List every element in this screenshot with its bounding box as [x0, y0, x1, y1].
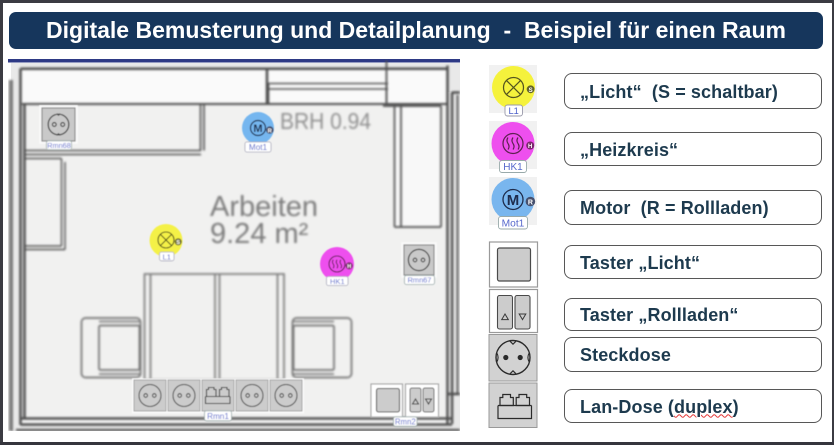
svg-text:H: H: [347, 264, 351, 270]
svg-text:Rmn2: Rmn2: [395, 417, 416, 426]
svg-text:Mot1: Mot1: [502, 218, 525, 229]
svg-text:HK1: HK1: [503, 162, 523, 173]
svg-text:Rmn67: Rmn67: [408, 276, 432, 285]
svg-text:S: S: [529, 88, 533, 94]
svg-text:S: S: [176, 240, 180, 246]
svg-text:Rmn1: Rmn1: [207, 412, 229, 421]
svg-text:HK1: HK1: [330, 277, 345, 286]
svg-text:R: R: [268, 128, 272, 134]
svg-text:L1: L1: [163, 252, 171, 261]
svg-text:L1: L1: [509, 106, 519, 116]
svg-text:H: H: [528, 144, 532, 150]
svg-text:Rmn68: Rmn68: [47, 141, 71, 150]
svg-text:BRH 0.94: BRH 0.94: [280, 108, 371, 134]
svg-text:M: M: [507, 192, 520, 209]
svg-text:9.24 m²: 9.24 m²: [210, 218, 309, 250]
svg-text:Mot1: Mot1: [249, 143, 268, 152]
svg-text:R: R: [528, 199, 533, 206]
svg-text:M: M: [253, 123, 262, 135]
